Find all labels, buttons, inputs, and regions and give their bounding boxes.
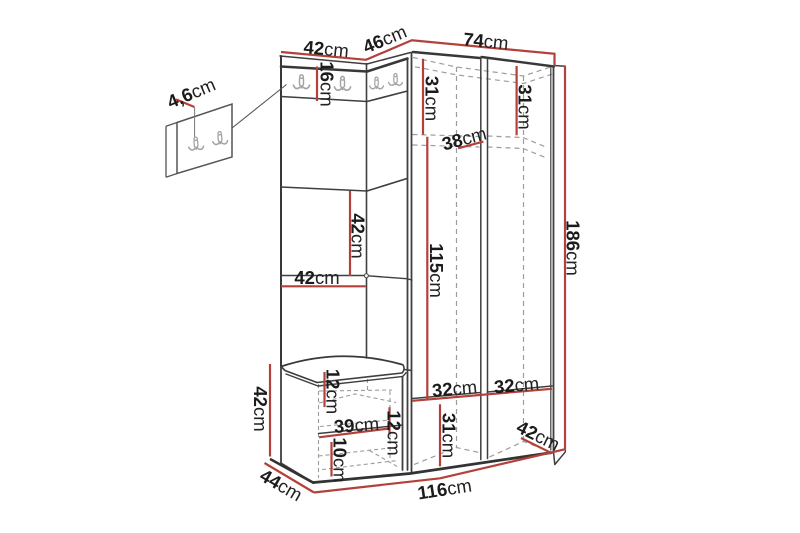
- svg-text:42cm: 42cm: [348, 213, 369, 258]
- svg-text:12cm: 12cm: [323, 369, 344, 414]
- svg-text:74cm: 74cm: [462, 28, 509, 53]
- svg-text:12cm: 12cm: [384, 410, 405, 455]
- svg-text:115cm: 115cm: [427, 243, 448, 298]
- svg-text:186cm: 186cm: [563, 220, 584, 276]
- svg-text:32cm: 32cm: [493, 372, 540, 397]
- svg-text:32cm: 32cm: [431, 376, 478, 401]
- svg-text:42cm: 42cm: [294, 267, 339, 288]
- svg-text:31cm: 31cm: [422, 76, 443, 121]
- svg-text:31cm: 31cm: [439, 413, 460, 458]
- svg-text:31cm: 31cm: [515, 84, 536, 129]
- svg-text:42cm: 42cm: [303, 36, 350, 61]
- svg-text:39cm: 39cm: [333, 412, 380, 436]
- svg-text:42cm: 42cm: [251, 386, 272, 431]
- svg-text:16cm: 16cm: [317, 61, 338, 106]
- svg-text:10cm: 10cm: [330, 437, 351, 482]
